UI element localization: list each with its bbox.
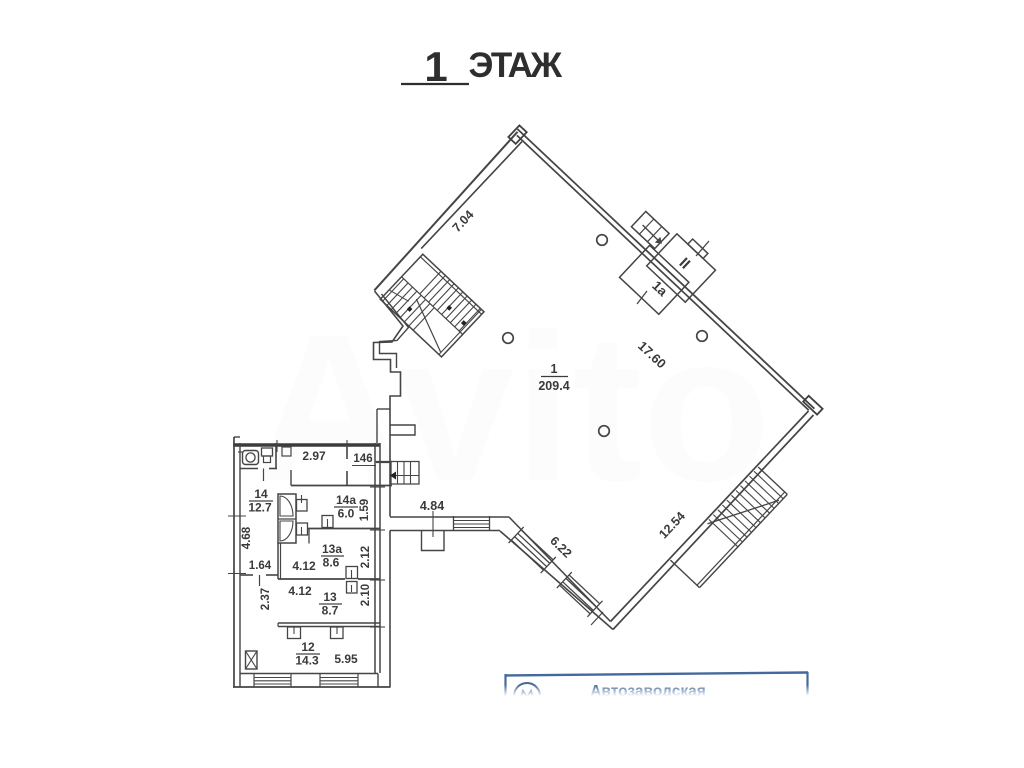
svg-text:6.0: 6.0 <box>338 507 355 521</box>
svg-text:5.95: 5.95 <box>334 652 358 666</box>
svg-text:14.3: 14.3 <box>295 654 319 668</box>
svg-text:2.37: 2.37 <box>260 588 272 610</box>
svg-text:Avito: Avito <box>253 290 770 525</box>
svg-text:13a: 13a <box>322 542 342 556</box>
svg-text:4.84: 4.84 <box>420 499 444 513</box>
svg-text:14: 14 <box>254 487 268 501</box>
svg-text:2.12: 2.12 <box>360 546 372 568</box>
svg-text:Автозаводская: Автозаводская <box>590 683 706 700</box>
svg-text:4.68: 4.68 <box>241 526 253 549</box>
svg-text:ЭТАЖ: ЭТАЖ <box>469 46 563 85</box>
svg-text:1.64: 1.64 <box>249 560 272 572</box>
svg-text:209.4: 209.4 <box>538 379 569 393</box>
svg-text:146: 146 <box>353 453 372 465</box>
svg-text:14a: 14a <box>336 493 356 507</box>
svg-text:2.10: 2.10 <box>360 584 372 606</box>
svg-text:4.12: 4.12 <box>288 584 312 598</box>
svg-text:1: 1 <box>551 362 558 376</box>
svg-text:4.12: 4.12 <box>292 559 316 573</box>
svg-text:12.7: 12.7 <box>248 501 272 515</box>
svg-text:12: 12 <box>301 640 315 654</box>
svg-text:8.7: 8.7 <box>322 604 339 618</box>
svg-text:8.6: 8.6 <box>323 556 340 570</box>
svg-text:1.59: 1.59 <box>359 499 371 521</box>
svg-text:13: 13 <box>323 590 337 604</box>
svg-text:2.97: 2.97 <box>302 449 326 463</box>
